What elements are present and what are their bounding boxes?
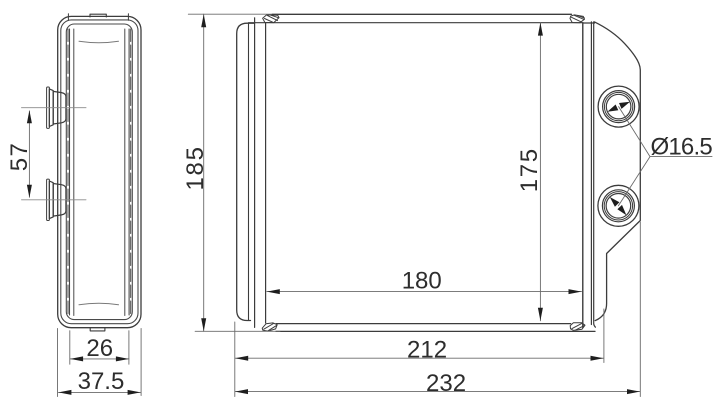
svg-text:Ø16.5: Ø16.5: [651, 133, 713, 160]
svg-text:212: 212: [407, 336, 447, 363]
svg-text:37.5: 37.5: [78, 368, 125, 395]
svg-text:180: 180: [402, 268, 442, 295]
svg-text:26: 26: [86, 335, 113, 362]
svg-text:57: 57: [6, 142, 33, 172]
svg-text:232: 232: [426, 370, 466, 397]
svg-text:175: 175: [516, 147, 543, 192]
svg-text:185: 185: [182, 145, 209, 190]
